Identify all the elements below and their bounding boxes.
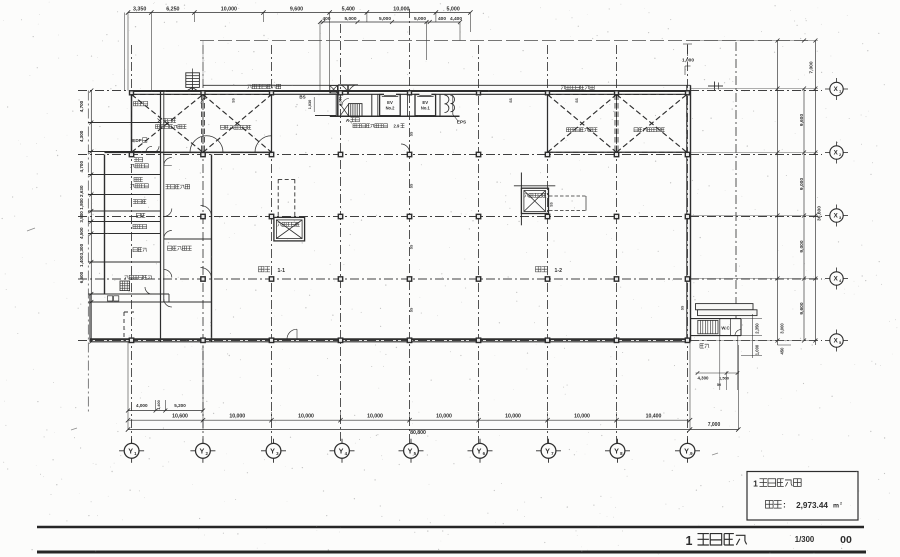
svg-text:4,300: 4,300 <box>79 130 84 142</box>
svg-text:9,600: 9,600 <box>799 114 805 127</box>
svg-text:4,700: 4,700 <box>79 161 84 173</box>
svg-text:SS: SS <box>409 307 413 312</box>
svg-text:4,300: 4,300 <box>698 376 710 381</box>
svg-text:SS: SS <box>509 98 513 103</box>
svg-text:2,973.44: 2,973.44 <box>796 501 828 510</box>
svg-text:BS: BS <box>299 94 305 99</box>
svg-text:10,000: 10,000 <box>221 6 237 12</box>
svg-text:80,800: 80,800 <box>410 430 426 436</box>
svg-text:No.2: No.2 <box>386 106 396 111</box>
svg-text:Y: Y <box>270 446 275 455</box>
svg-text:4,400: 4,400 <box>450 16 462 22</box>
svg-text:4,500: 4,500 <box>79 227 84 239</box>
svg-text:3,050: 3,050 <box>339 97 343 106</box>
svg-text:SS: SS <box>575 98 579 103</box>
svg-text:Y: Y <box>545 446 550 455</box>
svg-text:3,350: 3,350 <box>133 6 146 12</box>
svg-text:9,000: 9,000 <box>799 178 805 191</box>
svg-text:7,000: 7,000 <box>809 61 815 74</box>
svg-text:1,400: 1,400 <box>156 400 161 410</box>
svg-text:10,000: 10,000 <box>393 6 409 12</box>
svg-text:4,700: 4,700 <box>79 100 84 112</box>
svg-text:2,350: 2,350 <box>755 323 760 334</box>
svg-text:SS: SS <box>232 98 236 103</box>
svg-text:Y: Y <box>200 446 205 455</box>
svg-text:6,250: 6,250 <box>166 6 179 12</box>
svg-text:36,600: 36,600 <box>817 206 823 221</box>
svg-text:5,000: 5,000 <box>344 16 356 22</box>
svg-text:Y: Y <box>339 446 344 455</box>
svg-text:m: m <box>833 503 839 510</box>
svg-text:10,000: 10,000 <box>436 414 452 420</box>
svg-text:2,630: 2,630 <box>79 185 84 197</box>
svg-text:400: 400 <box>322 16 330 22</box>
svg-text:Y: Y <box>128 446 133 455</box>
svg-text:10,400: 10,400 <box>646 414 662 420</box>
svg-text:SS: SS <box>409 183 413 188</box>
svg-text:450: 450 <box>780 347 785 355</box>
svg-text:1,400: 1,400 <box>79 255 84 267</box>
svg-text:6,500: 6,500 <box>79 271 84 283</box>
svg-text:1,800: 1,800 <box>79 198 84 210</box>
svg-text:SS: SS <box>409 244 413 249</box>
svg-text::: : <box>783 501 786 510</box>
svg-text:50: 50 <box>717 382 721 387</box>
svg-text:Y: Y <box>477 446 482 455</box>
svg-text:9,600: 9,600 <box>799 302 805 315</box>
svg-text:1,000: 1,000 <box>682 58 694 64</box>
svg-text:SS: SS <box>409 131 413 136</box>
svg-text:5,200: 5,200 <box>174 403 186 408</box>
svg-text:5,400: 5,400 <box>342 6 355 12</box>
svg-text:No.1: No.1 <box>421 106 431 111</box>
svg-text:Y: Y <box>408 446 413 455</box>
svg-text:10,000: 10,000 <box>298 414 314 420</box>
svg-text:10,000: 10,000 <box>229 414 245 420</box>
svg-text:1-1: 1-1 <box>278 268 286 274</box>
svg-text:3,000: 3,000 <box>780 323 785 334</box>
svg-text:10,000: 10,000 <box>367 414 383 420</box>
svg-text:W.C: W.C <box>721 326 730 331</box>
svg-text:10,600: 10,600 <box>172 414 188 420</box>
svg-text:1,500: 1,500 <box>719 376 730 381</box>
svg-text:2: 2 <box>840 502 842 506</box>
svg-text:EV: EV <box>422 100 428 105</box>
svg-text:5,000: 5,000 <box>414 16 426 22</box>
svg-text:5,000: 5,000 <box>447 6 460 12</box>
svg-text:1/300: 1/300 <box>795 535 815 544</box>
svg-text:7,000: 7,000 <box>708 422 721 428</box>
svg-text:1,000: 1,000 <box>755 344 760 355</box>
svg-text:1: 1 <box>686 534 693 548</box>
svg-text:400: 400 <box>438 16 446 22</box>
svg-text:9,000: 9,000 <box>799 240 805 253</box>
svg-text:EV: EV <box>387 100 393 105</box>
svg-text:10,000: 10,000 <box>574 414 590 420</box>
svg-text:10,000: 10,000 <box>505 414 521 420</box>
svg-text:4,000: 4,000 <box>136 403 148 408</box>
svg-text:9,600: 9,600 <box>290 6 303 12</box>
svg-text:SS: SS <box>681 305 685 310</box>
svg-text:2.9: 2.9 <box>394 123 400 128</box>
svg-text:1-2: 1-2 <box>555 268 563 274</box>
svg-text:5,000: 5,000 <box>379 16 391 22</box>
svg-text:Y: Y <box>684 446 689 455</box>
svg-text:EPS: EPS <box>457 120 466 125</box>
svg-text:Y: Y <box>614 446 619 455</box>
svg-text:3,500: 3,500 <box>79 211 84 223</box>
svg-text:3,300: 3,300 <box>79 243 84 255</box>
svg-text:1,030: 1,030 <box>308 100 312 110</box>
